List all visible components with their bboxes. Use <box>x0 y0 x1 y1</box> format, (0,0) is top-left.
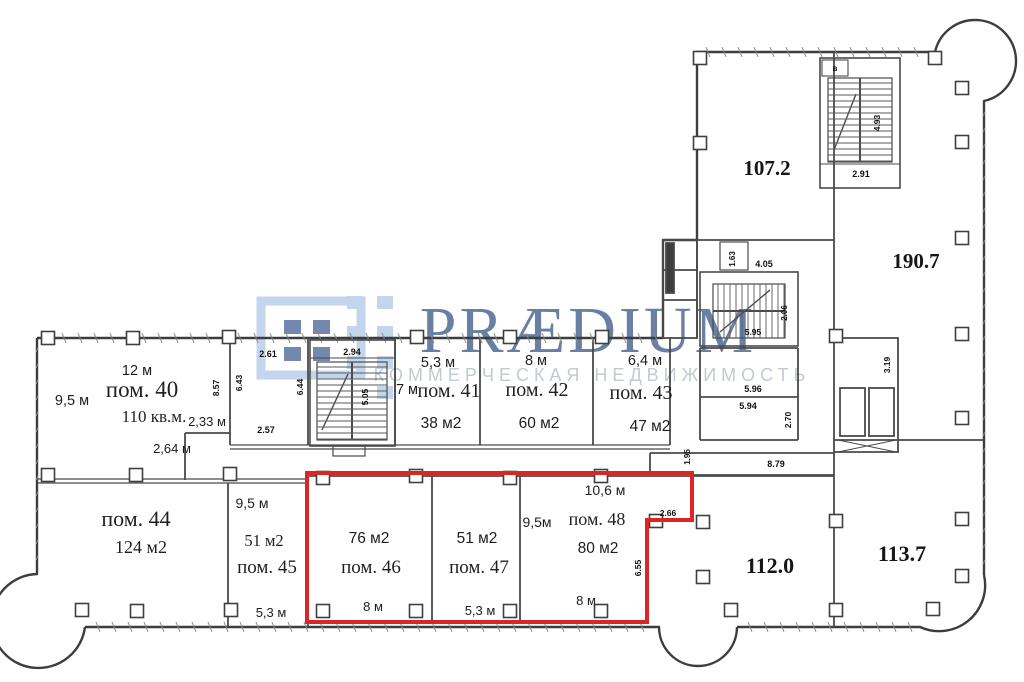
pom48-name: пом. 48 <box>569 509 626 529</box>
stair-room-letter: в <box>833 64 838 73</box>
column <box>927 603 940 616</box>
column <box>504 331 517 344</box>
column <box>410 605 423 618</box>
dim-879: 8.79 <box>767 459 785 469</box>
column <box>225 604 238 617</box>
dim-505: 5.05 <box>360 388 370 405</box>
dim-643: 6.43 <box>234 374 244 391</box>
pom41-area: 38 м2 <box>421 415 462 432</box>
pom45-name: пом. 45 <box>237 557 297 578</box>
dim-594: 5.94 <box>739 401 757 411</box>
column <box>130 469 143 482</box>
pom40-left-dim: 9,5 м <box>55 393 89 409</box>
column <box>956 232 969 245</box>
dim-291: 2.91 <box>852 169 870 179</box>
column <box>317 605 330 618</box>
column <box>76 604 89 617</box>
dim-270: 2.70 <box>783 411 793 428</box>
column <box>697 571 710 584</box>
pom47-area: 51 м2 <box>457 530 498 547</box>
column <box>929 52 942 65</box>
watermark-brand: PRÆDIUM <box>420 294 756 367</box>
pom43-top-dim: 6,4 м <box>628 353 662 369</box>
column <box>223 331 236 344</box>
pom48-area: 80 м2 <box>578 540 619 557</box>
dim-163: 1.63 <box>728 251 737 267</box>
column <box>411 331 424 344</box>
dim-195: 1.95 <box>683 449 692 465</box>
floor-plan: PRÆDIUM КОММЕРЧЕСКАЯ НЕДВИЖИМОСТЬ <box>0 0 1024 682</box>
column <box>127 332 140 345</box>
column <box>595 605 608 618</box>
dim-596: 5.96 <box>744 384 762 394</box>
pom42-area: 60 м2 <box>519 415 560 432</box>
dim-857: 8.57 <box>211 379 221 396</box>
column <box>830 604 843 617</box>
column <box>697 516 710 529</box>
pom43-area: 47 м2 <box>630 418 671 435</box>
column <box>725 604 738 617</box>
dim-595: 5.95 <box>745 327 762 337</box>
dim-264: 2,64 м <box>153 441 191 456</box>
column <box>956 412 969 425</box>
column <box>956 570 969 583</box>
column <box>42 332 55 345</box>
dim-233: 2,33 м <box>188 414 226 429</box>
pom44-name: пом. 44 <box>101 506 170 531</box>
pom46-bottom-dim: 8 м <box>363 599 383 614</box>
pom45-area: 51 м2 <box>244 531 283 550</box>
pom46-area: 76 м2 <box>349 530 390 547</box>
pom41-top-dim: 5,3 м <box>421 355 455 371</box>
structural-columns <box>42 52 969 618</box>
pom48-bottom-dim: 8 м <box>576 593 596 608</box>
zone-190-label: 190.7 <box>892 249 939 273</box>
pom47-bottom-dim: 5,3 м <box>465 603 496 618</box>
pom48-left-dim: 9,5м <box>522 514 551 530</box>
pom40-area: 110 кв.м. <box>122 407 187 426</box>
pom42-top-dim: 8 м <box>525 353 547 369</box>
pom41-left-dim: 7 м <box>396 382 418 398</box>
dim-294: 2.94 <box>343 347 361 357</box>
column <box>42 469 55 482</box>
column <box>956 136 969 149</box>
pom48-top-dim: 10,6 м <box>585 482 626 498</box>
pom43-name: пом. 43 <box>610 382 673 404</box>
pom47-name: пом. 47 <box>449 557 509 578</box>
column <box>131 605 144 618</box>
column <box>956 82 969 95</box>
column <box>694 52 707 65</box>
column <box>504 605 517 618</box>
dim-644: 6.44 <box>295 378 305 395</box>
pom42-name: пом. 42 <box>506 379 569 401</box>
dim-257: 2.57 <box>257 425 275 435</box>
pom45-top-dim: 9,5 м <box>236 495 269 511</box>
column <box>224 468 237 481</box>
pom46-name: пом. 46 <box>341 557 401 578</box>
dim-261: 2.61 <box>259 349 277 359</box>
column <box>830 515 843 528</box>
pom41-name: пом. 41 <box>418 380 481 402</box>
column <box>956 328 969 341</box>
zone-107-label: 107.2 <box>743 156 790 180</box>
pom45-bottom-dim: 5,3 м <box>256 605 287 620</box>
dim-493: 4.93 <box>872 114 882 131</box>
dim-405: 4.05 <box>755 259 773 269</box>
dim-319: 3.19 <box>882 356 892 373</box>
pom44-area: 124 м2 <box>115 537 167 557</box>
column <box>956 513 969 526</box>
dim-655: 6.55 <box>633 559 643 576</box>
column <box>830 330 843 343</box>
zone-113-label: 113.7 <box>878 541 926 566</box>
column <box>596 331 609 344</box>
column <box>694 137 707 150</box>
zone-112-label: 112.0 <box>746 553 794 578</box>
dim-206: 2.06 <box>780 305 789 321</box>
dim-266: 2.66 <box>660 508 677 518</box>
pom40-name: пом. 40 <box>106 377 178 402</box>
